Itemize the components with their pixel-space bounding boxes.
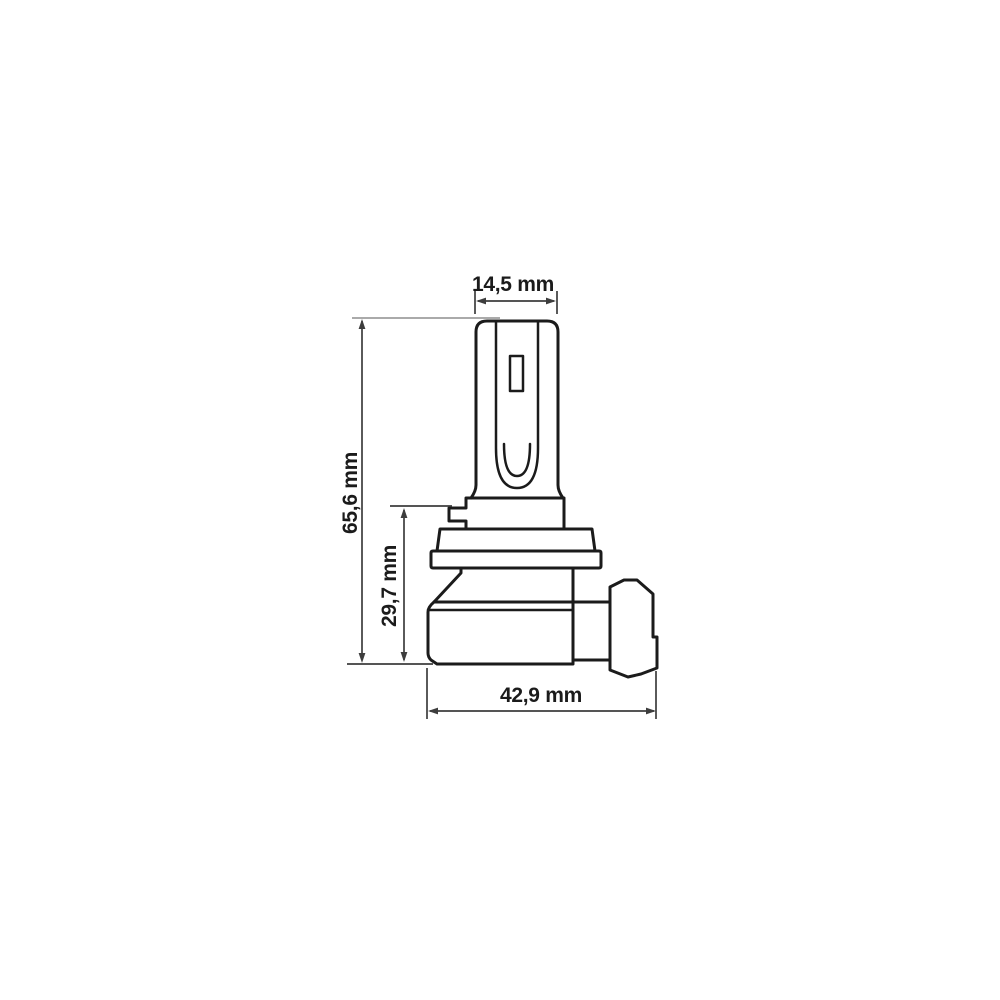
part-outline-group — [428, 321, 657, 677]
led-slot — [510, 356, 523, 391]
head-width-label: 14,5 mm — [472, 273, 554, 296]
bulb-head-outline — [471, 321, 563, 498]
bulb-technical-drawing: 14,5 mm 65,6 mm 29,7 mm 42,9 mm — [0, 0, 1000, 1000]
base-length-arrow-right — [646, 708, 656, 715]
base-height-arrow-top — [401, 508, 408, 518]
base-height-arrow-bottom — [401, 652, 408, 662]
base-height-label: 29,7 mm — [378, 545, 401, 627]
body-profile-outline — [428, 568, 573, 664]
base-length-label: 42,9 mm — [500, 684, 582, 707]
diagram-canvas: 14,5 mm 65,6 mm 29,7 mm 42,9 mm — [0, 0, 1000, 1000]
total-height-label: 65,6 mm — [339, 452, 362, 534]
head-width-arrow-right — [546, 298, 556, 305]
mounting-flange-outline — [431, 551, 601, 568]
total-height-arrow-top — [359, 319, 366, 329]
connector-outline — [610, 580, 657, 677]
total-height-arrow-bottom — [359, 653, 366, 663]
neck-and-tab-outline — [449, 498, 564, 529]
bulb-inner-tube-outline — [496, 321, 538, 488]
collar-step-outline — [437, 529, 595, 551]
bulb-inner-arc — [504, 444, 530, 476]
base-length-arrow-left — [428, 708, 438, 715]
dimension-label-group: 14,5 mm 65,6 mm 29,7 mm 42,9 mm — [339, 273, 582, 707]
head-width-arrow-left — [476, 298, 486, 305]
